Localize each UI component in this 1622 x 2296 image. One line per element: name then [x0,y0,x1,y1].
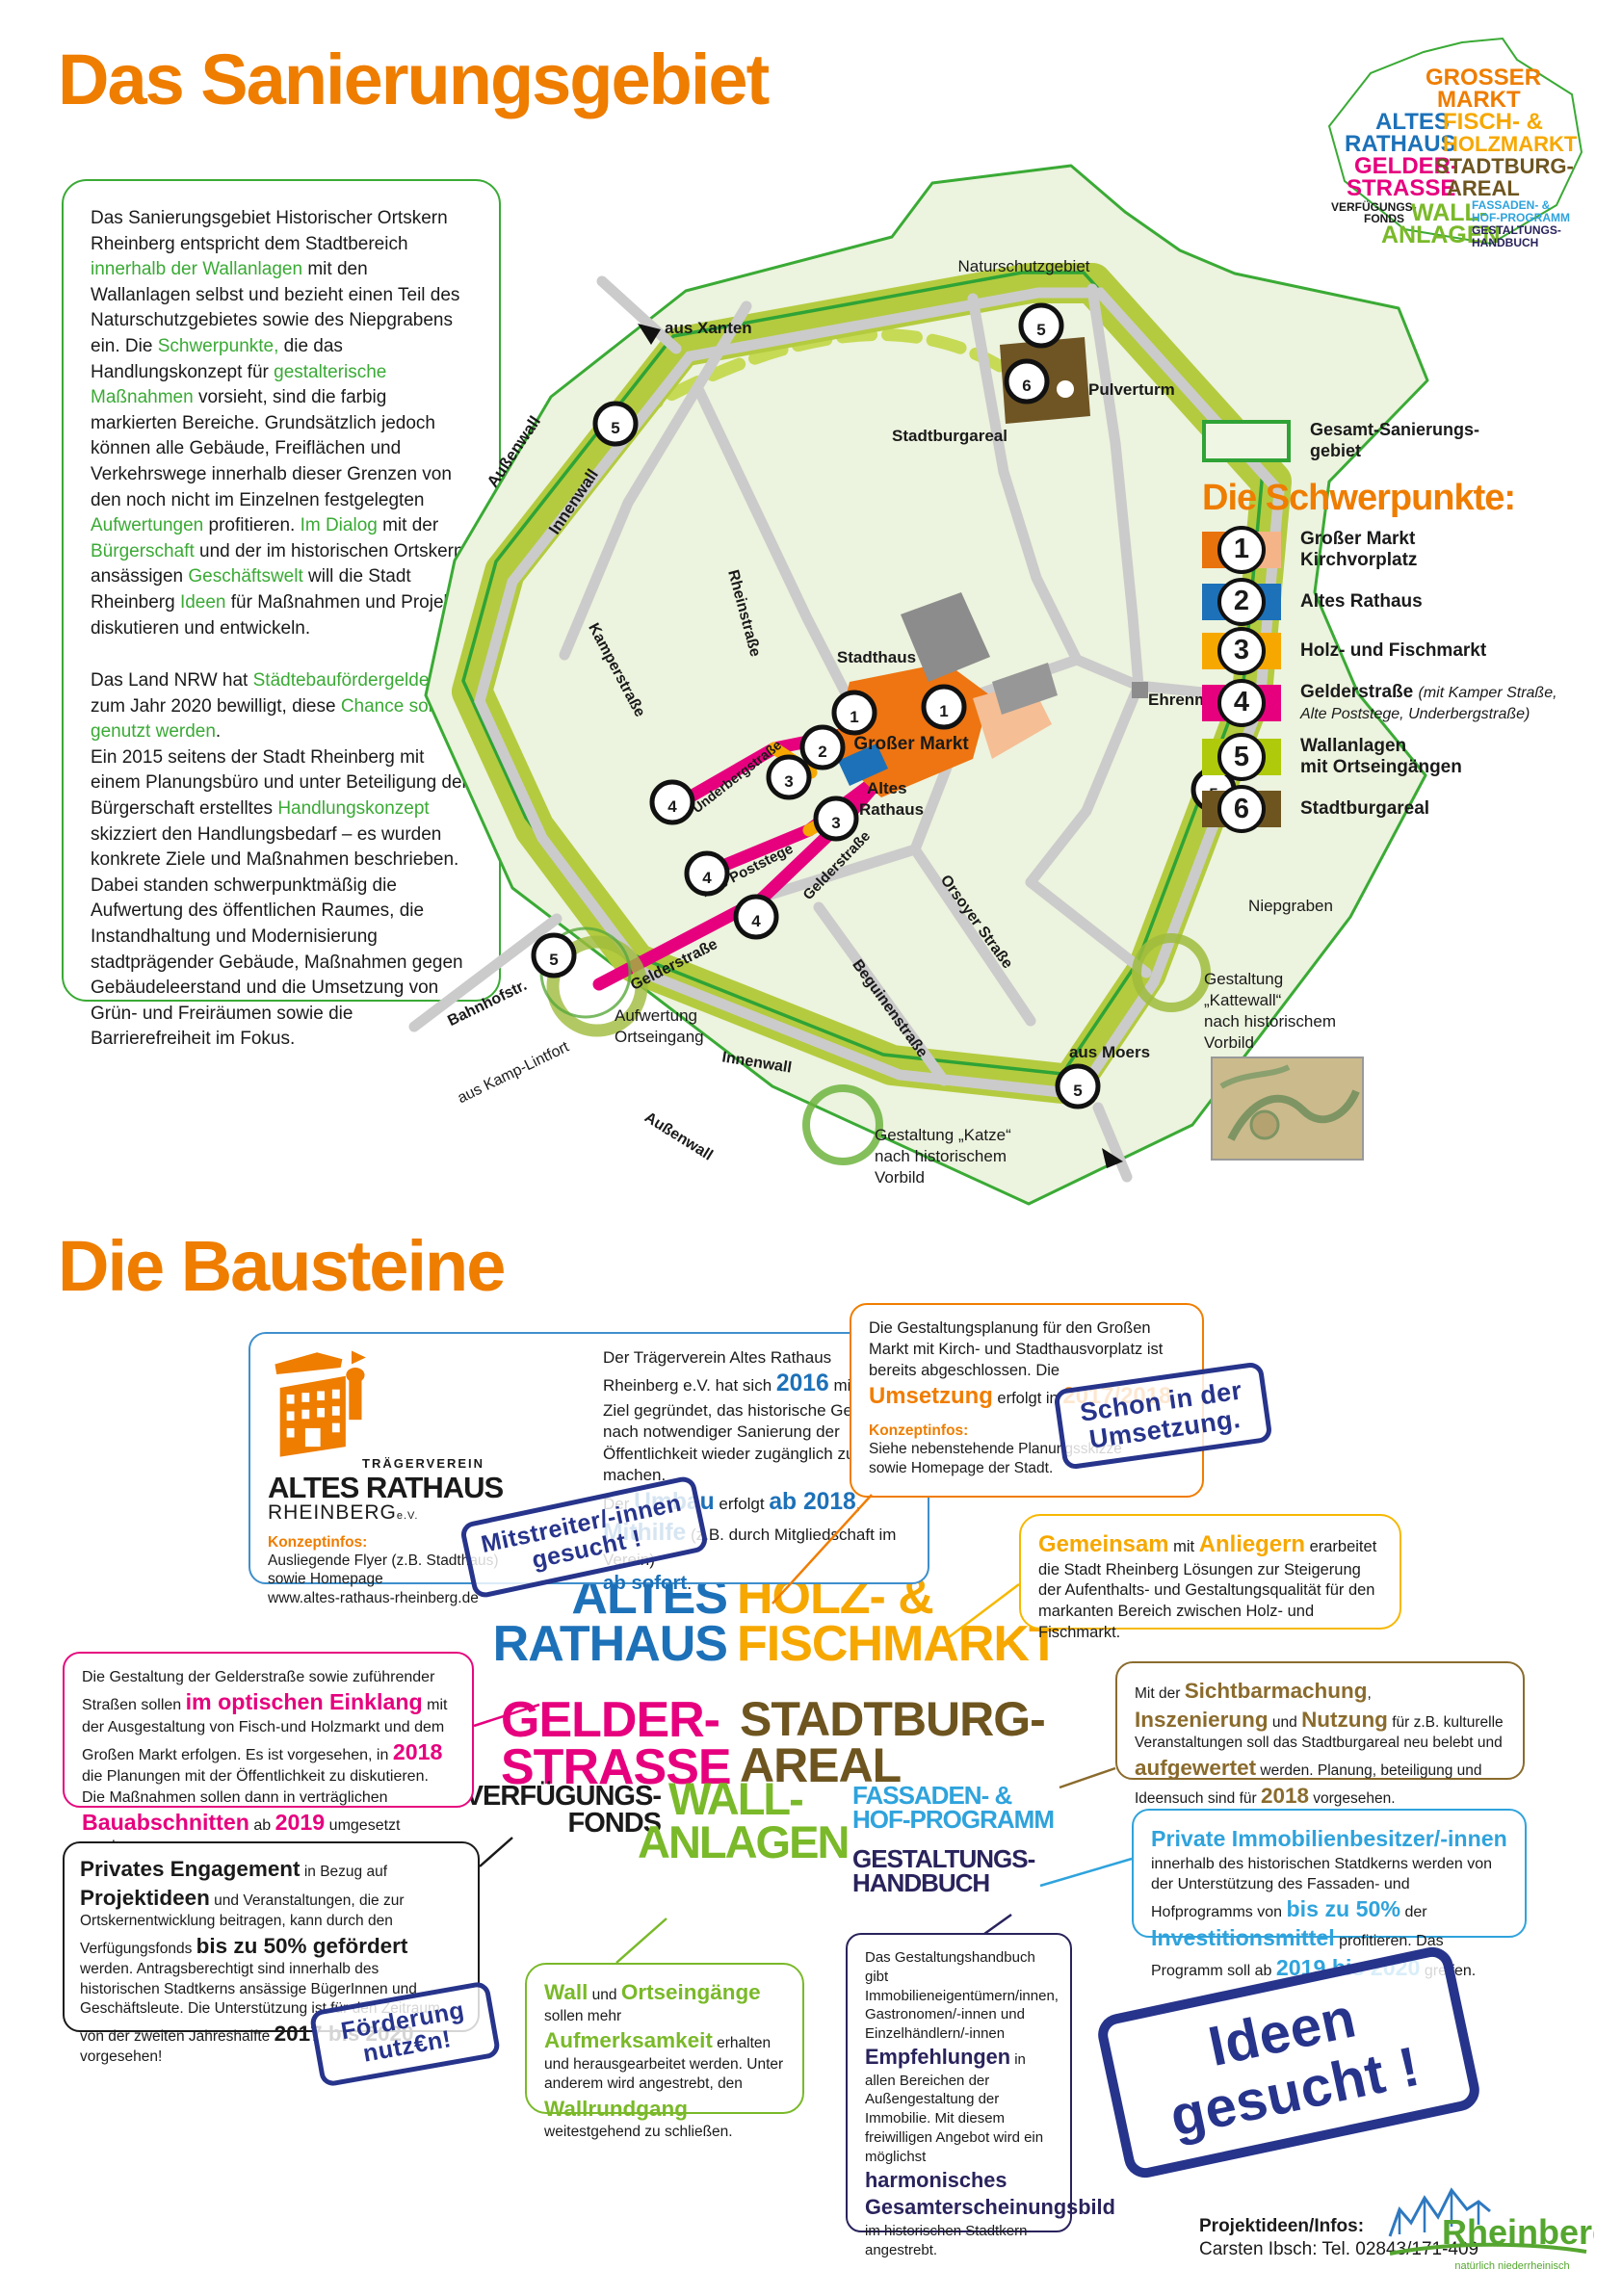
historic-map-image [1212,1057,1363,1160]
svg-text:4: 4 [751,912,761,930]
map-legend: Gesamt-Sanierungs-gebiet Die Schwerpunkt… [1202,420,1558,840]
legend-swatch-3: 3 [1202,633,1281,669]
map-label-stadtburgareal: Stadtburgareal [892,427,1007,445]
map-label-katze-2: nach historischem [875,1147,1007,1165]
legend-badge-6: 6 [1217,785,1266,833]
connector-verfuegungsfonds [480,1838,512,1866]
cloud-fassaden-hof: FASSADEN- &HOF-PROGRAMM [852,1784,1054,1831]
map-label-aussenwall-bottom: Außenwall [641,1109,716,1164]
map-label-kattewall-2: „Kattewall“ [1204,991,1282,1009]
badge-6-stadtburg: 6 [1007,361,1047,402]
legend-item-4: 4 Gelderstraße (mit Kamper Straße, Alte … [1202,682,1558,724]
badge-3-fischmarkt: 3 [769,757,809,797]
svg-text:3: 3 [831,814,840,832]
page-title: Das Sanierungsgebiet [58,39,768,120]
map-label-altes: Altes [867,779,907,797]
legend-badge-3: 3 [1217,627,1266,675]
section-title-bausteine: Die Bausteine [58,1225,504,1307]
legend-heading: Die Schwerpunkte: [1202,478,1558,519]
badge-1-kirchvorplatz: 1 [924,687,964,727]
legend-swatch-2: 2 [1202,584,1281,620]
map-label-kattewall-3: nach historischem [1204,1012,1336,1031]
map-label-aus-kamp-lintfort: aus Kamp-Lintfort [456,1038,572,1107]
cloud-verfuegungsfonds: VERFÜGUNGS-FONDS [460,1784,661,1837]
svg-text:5: 5 [549,951,558,969]
gesamtgebiet-swatch [1202,420,1291,462]
badge-4-gelderstrasse: 4 [736,897,776,937]
legend-item-2: 2 Altes Rathaus [1202,584,1558,620]
map-label-niepgraben: Niepgraben [1248,897,1333,915]
building-ehrenmal [1132,682,1148,698]
connector-fassaden [1040,1859,1132,1886]
logo-word-holzmarkt: HOLZMARKT [1443,132,1578,156]
connector-stadtburg [1060,1768,1115,1787]
legend-item-1: 1 Großer MarktKirchvorplatz [1202,529,1558,571]
card-stadtburgareal: Mit der Sichtbarmachung, Inszenierung un… [1115,1661,1525,1780]
map-label-bahnhofstr: Bahnhofstr. [445,978,529,1030]
svg-text:5: 5 [1073,1082,1082,1100]
card-wallanlagen: Wall und Ortseingänge sollen mehr Aufmer… [525,1963,804,2114]
legend-swatch-6: 6 [1202,791,1281,827]
legend-item-5: 5 Wallanlagenmit Ortseingängen [1202,736,1558,778]
map-label-aufwertung-1: Aufwertung [615,1006,697,1025]
legend-item-3: 3 Holz- und Fischmarkt [1202,633,1558,669]
svg-text:2: 2 [818,743,826,761]
legend-badge-4: 4 [1217,679,1266,727]
poster: Das Sanierungsgebiet GROSSER MARKT ALTES… [0,0,1622,2296]
map-label-aufwertung-2: Ortseingang [615,1028,704,1046]
cloud-gestaltungshandbuch: GESTALTUNGS-HANDBUCH [852,1847,1034,1894]
svg-text:4: 4 [702,869,712,887]
svg-text:1: 1 [939,702,948,720]
map-label-grosser-markt: Großer Markt [853,734,969,754]
gesamtgebiet-label: Gesamt-Sanierungs-gebiet [1310,420,1479,461]
map-label-kattewall-4: Vorbild [1204,1033,1254,1052]
map-label-aus-xanten: aus Xanten [665,319,752,337]
svg-text:6: 6 [1022,377,1031,395]
badge-1-markt: 1 [834,692,875,733]
logo-word-fisch: FISCH- & [1443,109,1543,135]
legend-gesamtgebiet: Gesamt-Sanierungs-gebiet [1202,420,1558,462]
cloud-wallanlagen: WALL-ANLAGEN [638,1778,848,1864]
city-logo-tagline: natürlich niederrheinisch [1454,2260,1569,2272]
badge-3-holzmarkt: 3 [816,798,856,839]
svg-text:5: 5 [1036,321,1045,339]
svg-text:1: 1 [850,708,858,726]
connector-wallanlagen [616,1918,667,1963]
map-label-katze-3: Vorbild [875,1168,925,1187]
map-label-rathaus: Rathaus [859,800,924,819]
badge-5-xanten: 5 [595,404,636,444]
badge-4-underberg: 4 [652,782,693,822]
logo-altes-rathaus: ALTES RATHAUS [268,1473,586,1502]
rheinberg-city-logo: Rheinberg natürlich niederrheinisch [1382,2179,1594,2280]
svg-text:5: 5 [611,419,619,437]
card-holz-fischmarkt: Gemeinsam mit Anliegern erarbeitet die S… [1019,1514,1401,1630]
map-label-kattewall-1: Gestaltung [1204,970,1283,988]
legend-badge-1: 1 [1217,526,1266,574]
connector-handbuch [984,1915,1011,1934]
badge-4-poststege: 4 [687,853,727,894]
card-gelderstrasse: Die Gestaltung der Gelderstraße sowie zu… [63,1652,474,1808]
legend-swatch-5: 5 [1202,739,1281,775]
map-label-pulverturm: Pulverturm [1088,380,1175,399]
badge-2-rathaus: 2 [802,727,843,768]
svg-text:4: 4 [667,797,677,816]
legend-item-6: 6 Stadtburgareal [1202,791,1558,827]
map-label-stadthaus: Stadthaus [837,648,916,666]
badge-5-stadtburg: 5 [1021,305,1061,346]
map-label-aus-moers: aus Moers [1069,1043,1150,1061]
card-gestaltungshandbuch: Das Gestaltungshandbuch gibt Immobiliene… [846,1933,1072,2232]
svg-text:3: 3 [784,772,793,791]
legend-swatch-1: 1 [1202,532,1281,568]
badge-5-west: 5 [534,935,574,976]
altes-rathaus-logo-icon [268,1347,395,1461]
legend-badge-5: 5 [1217,733,1266,781]
badge-5-south: 5 [1058,1066,1098,1107]
legend-swatch-4: 4 [1202,685,1281,721]
legend-badge-2: 2 [1217,578,1266,626]
map-label-naturschutzgebiet: Naturschutzgebiet [957,257,1089,275]
pulverturm-dot [1057,380,1074,398]
map-label-katze-1: Gestaltung „Katze“ [875,1126,1011,1144]
card-fassaden-hof: Private Immobilienbesitzer/-innen innerh… [1132,1809,1527,1938]
